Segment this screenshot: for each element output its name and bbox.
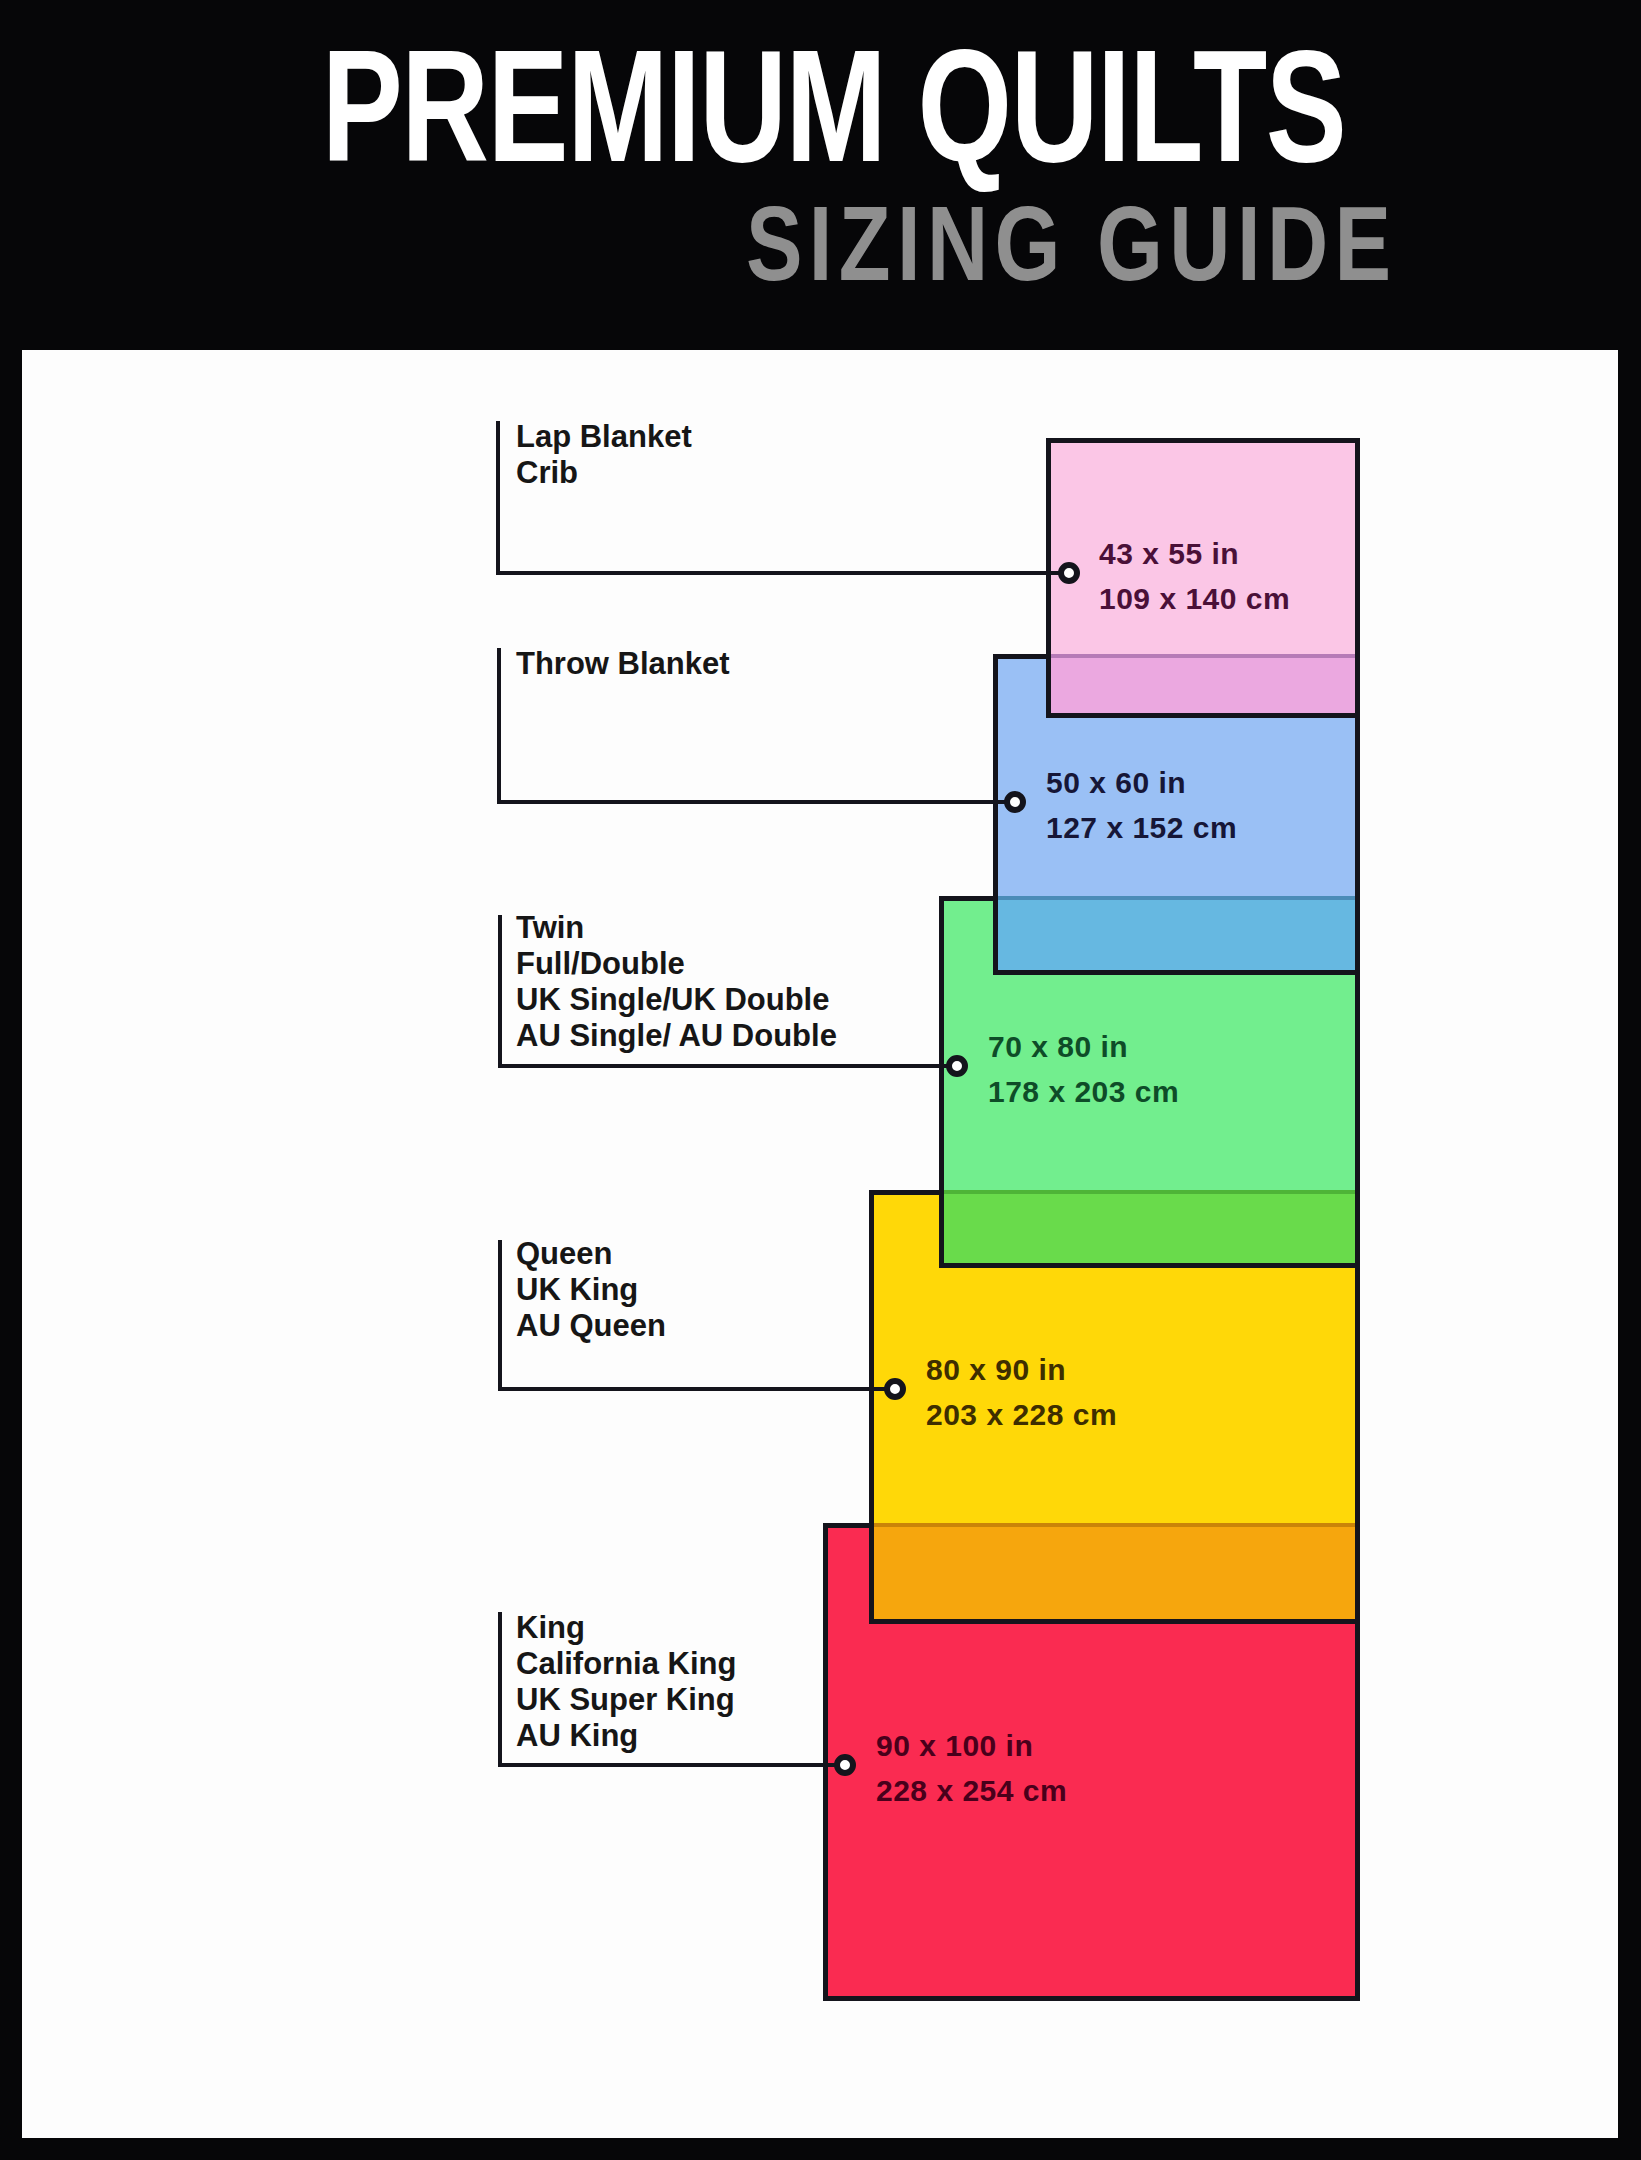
label-line: Throw Blanket: [516, 646, 730, 682]
label-line: Twin: [516, 910, 837, 946]
label-twin: Twin Full/Double UK Single/UK Double AU …: [516, 910, 837, 1054]
dims-twin: 70 x 80 in 178 x 203 cm: [988, 1024, 1179, 1114]
label-line: Lap Blanket: [516, 419, 692, 455]
label-line: AU Single/ AU Double: [516, 1018, 837, 1054]
dims-inches: 50 x 60 in: [1046, 760, 1237, 805]
dims-cm: 127 x 152 cm: [1046, 805, 1237, 850]
leader-vline-lap-crib: [496, 421, 500, 575]
label-king: King California King UK Super King AU Ki…: [516, 1610, 736, 1754]
leader-hline-twin: [498, 1064, 957, 1068]
label-line: Full/Double: [516, 946, 837, 982]
page-title: PREMIUM QUILTS: [220, 26, 1447, 186]
leader-vline-queen: [498, 1240, 502, 1391]
marker-dot-icon: [834, 1754, 856, 1776]
dims-inches: 70 x 80 in: [988, 1024, 1179, 1069]
label-line: AU Queen: [516, 1308, 666, 1344]
label-queen: Queen UK King AU Queen: [516, 1236, 666, 1344]
leader-hline-king: [498, 1763, 845, 1767]
dims-cm: 203 x 228 cm: [926, 1392, 1117, 1437]
leader-hline-queen: [498, 1387, 895, 1391]
dims-inches: 80 x 90 in: [926, 1347, 1117, 1392]
dims-king: 90 x 100 in 228 x 254 cm: [876, 1723, 1067, 1813]
dims-inches: 90 x 100 in: [876, 1723, 1067, 1768]
marker-dot-icon: [884, 1378, 906, 1400]
dims-throw: 50 x 60 in 127 x 152 cm: [1046, 760, 1237, 850]
label-line: Crib: [516, 455, 692, 491]
dims-inches: 43 x 55 in: [1099, 531, 1290, 576]
label-line: King: [516, 1610, 736, 1646]
label-line: UK Super King: [516, 1682, 736, 1718]
overlap-band-lap-throw: [1051, 654, 1355, 713]
dims-cm: 178 x 203 cm: [988, 1069, 1179, 1114]
leader-vline-throw: [497, 648, 501, 804]
dims-cm: 109 x 140 cm: [1099, 576, 1290, 621]
overlap-band-throw-twin: [998, 896, 1355, 970]
marker-dot-icon: [946, 1055, 968, 1077]
leader-hline-lap-crib: [496, 571, 1069, 575]
marker-dot-icon: [1004, 791, 1026, 813]
dims-queen: 80 x 90 in 203 x 228 cm: [926, 1347, 1117, 1437]
diagram-panel: [22, 350, 1618, 2138]
label-line: California King: [516, 1646, 736, 1682]
label-line: AU King: [516, 1718, 736, 1754]
infographic-page: PREMIUM QUILTS SIZING GUIDE 43 x 55 in 1…: [0, 0, 1641, 2160]
marker-dot-icon: [1058, 562, 1080, 584]
label-lap-crib: Lap Blanket Crib: [516, 419, 692, 491]
page-subtitle: SIZING GUIDE: [746, 190, 1398, 296]
label-line: UK King: [516, 1272, 666, 1308]
overlap-band-queen-king: [874, 1523, 1355, 1619]
dims-lap-crib: 43 x 55 in 109 x 140 cm: [1099, 531, 1290, 621]
label-line: UK Single/UK Double: [516, 982, 837, 1018]
overlap-band-twin-queen: [944, 1190, 1355, 1263]
dims-cm: 228 x 254 cm: [876, 1768, 1067, 1813]
leader-hline-throw: [497, 800, 1015, 804]
leader-vline-twin: [498, 915, 502, 1068]
label-line: Queen: [516, 1236, 666, 1272]
label-throw: Throw Blanket: [516, 646, 730, 682]
leader-vline-king: [498, 1612, 502, 1767]
